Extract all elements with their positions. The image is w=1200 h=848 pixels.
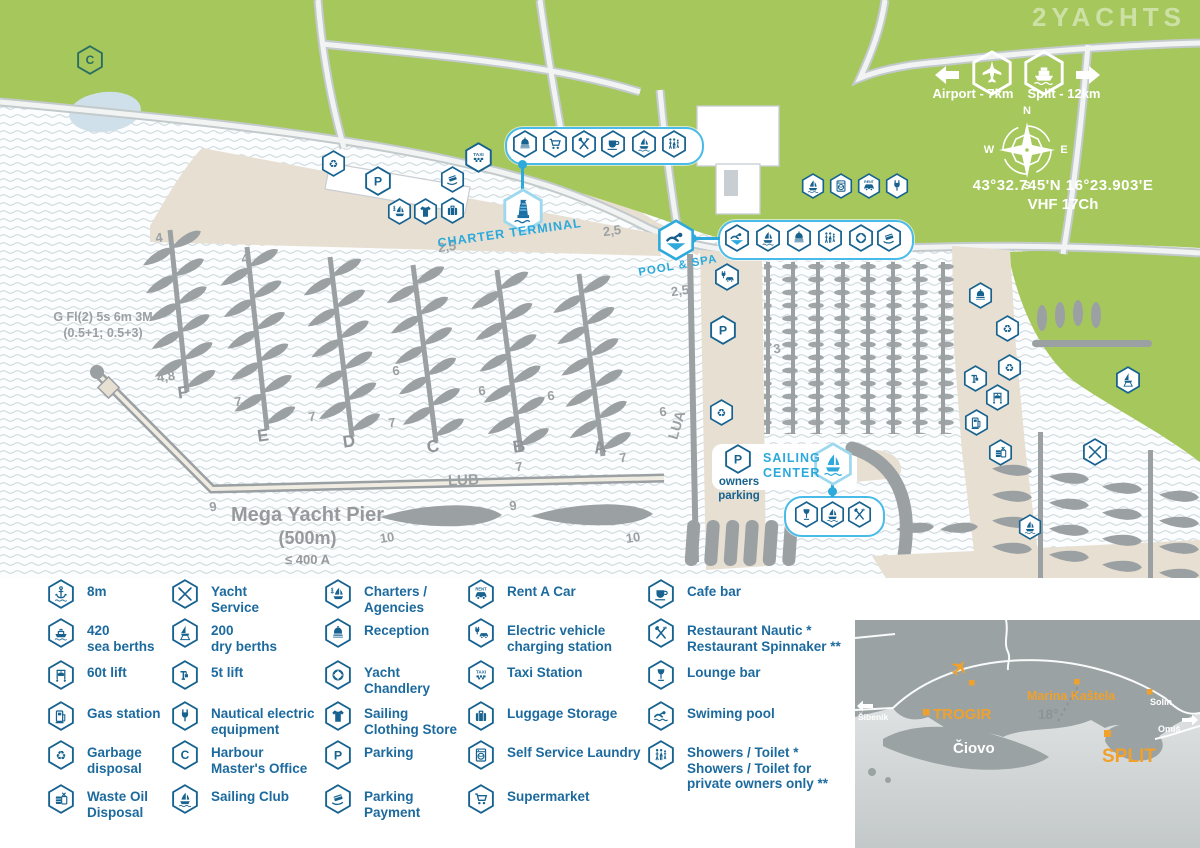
wine-glass-icon (646, 660, 676, 690)
swimmer-pool-icon (723, 224, 751, 252)
cart-icon (466, 784, 496, 814)
people-icon (816, 224, 844, 252)
svg-text:P: P (334, 749, 342, 763)
legend-item-label: Parking (364, 740, 414, 761)
legend-item-label: Luggage Storage (507, 701, 617, 722)
inset-trogir-label: TROGIR (933, 706, 991, 723)
waste-oil-icon (46, 784, 76, 814)
legend-item-label: Swiming pool (687, 701, 775, 722)
cart-icon (541, 130, 569, 158)
ship-icon (46, 618, 76, 648)
card-hand-icon (875, 224, 903, 252)
legend-item: Reception (323, 618, 429, 648)
vhf-channel: VHF 17Ch (930, 196, 1196, 213)
legend-item: 200dry berths (170, 618, 277, 654)
letter-c-icon: C (75, 45, 105, 75)
legend-item-label: Restaurant Nautic *Restaurant Spinnaker … (687, 618, 841, 654)
life-ring-icon (323, 660, 353, 690)
legend-item-label: Cafe bar (687, 579, 741, 600)
legend-item-label: Lounge bar (687, 660, 761, 681)
svg-text:C: C (181, 748, 190, 762)
crane-60t-icon (984, 384, 1011, 411)
legend-item-label: Nautical electricequipment (211, 701, 315, 737)
swimmer-icon (646, 701, 676, 731)
recycle-icon: ♻ (996, 354, 1023, 381)
wine-glass-icon (793, 501, 820, 528)
svg-text:♻: ♻ (1002, 322, 1012, 335)
inset-sibenik-label: Šibenik (858, 711, 889, 722)
legend-item-label: Showers / Toilet *Showers / Toilet forpr… (687, 740, 828, 792)
svg-text:TAXI: TAXI (476, 669, 486, 674)
legend-item-label: 60t lift (87, 660, 127, 681)
tools-icon (1081, 438, 1109, 466)
bell-icon (511, 130, 539, 158)
legend-item: 8m (46, 579, 107, 609)
inset-marina-label: Marina Kaštela (1027, 689, 1116, 703)
mega-pier-label-1: Mega Yacht Pier (215, 504, 400, 527)
sailing-center-label-1: SAILING (763, 451, 821, 465)
legend-item-label: Charters /Agencies (364, 579, 427, 615)
mega-pier-label-3: ≤ 400 A (215, 552, 400, 567)
inset-bearing-label: 18° (1038, 707, 1058, 722)
compass-e: E (1057, 144, 1071, 156)
legend-item-label: Electric vehiclecharging station (507, 618, 612, 654)
legend-item-label: Reception (364, 618, 429, 639)
legend-item: Nautical electricequipment (170, 701, 315, 737)
fork-spoon-icon (846, 501, 873, 528)
legend-item: Waste OilDisposal (46, 784, 148, 820)
people-icon (660, 130, 688, 158)
locator-inset-map: Šibenik TROGIR Čiovo Marina Kaštela 18° … (855, 620, 1200, 848)
marina-map-page: 2YACHTS Airport - 7km Split - 12km N E S… (0, 0, 1200, 848)
anchor-depth-icon (46, 579, 76, 609)
recycle-icon: ♻ (320, 150, 347, 177)
legend-item: RENTRent A Car (466, 579, 576, 609)
svg-text:♻: ♻ (1004, 361, 1014, 374)
legend-item: Luggage Storage (466, 701, 617, 731)
legend-item: Supermarket (466, 784, 590, 814)
inset-omis-label: Omiš (1158, 724, 1181, 734)
sailboat-anchor-icon (386, 198, 413, 225)
boat-stand-icon (170, 618, 200, 648)
svg-text:RENT: RENT (864, 180, 875, 184)
owners-parking-label-1: owners (711, 476, 767, 488)
pier-letter: A (587, 436, 614, 459)
coffee-cup-icon (646, 579, 676, 609)
sailboat-icon (819, 501, 846, 528)
legend-item: YachtService (170, 579, 259, 615)
waste-oil-icon (987, 439, 1014, 466)
legend-item-label: Self Service Laundry (507, 740, 641, 761)
crane-5t-icon (170, 660, 200, 690)
washing-machine-icon (466, 740, 496, 770)
tshirt-icon (412, 198, 439, 225)
recycle-icon: ♻ (46, 740, 76, 770)
lub-pier-label: LUB (448, 471, 480, 490)
legend-item: PParking (323, 740, 414, 770)
legend-item: Electric vehiclecharging station (466, 618, 612, 654)
legend-item-label: YachtChandlery (364, 660, 430, 696)
suitcase-icon (439, 197, 466, 224)
light-characteristic-2: (0.5+1; 0.5+3) (38, 326, 168, 340)
card-hand-icon (323, 784, 353, 814)
car-rent-icon: RENT (856, 173, 882, 199)
sailboat-icon (630, 130, 658, 158)
crane-60t-icon (46, 660, 76, 690)
gas-pump-icon (963, 409, 990, 436)
washing-machine-icon (828, 173, 854, 199)
legend-item-label: Rent A Car (507, 579, 576, 600)
pier-light (90, 365, 104, 379)
compass-n: N (1020, 105, 1034, 117)
people-icon (646, 740, 676, 770)
site-watermark: 2YACHTS (1032, 2, 1186, 33)
plug-icon (170, 701, 200, 731)
legend-item: 420sea berths (46, 618, 155, 654)
legend-item-label: 420sea berths (87, 618, 155, 654)
legend-item: SailingClothing Store (323, 701, 457, 737)
compass-rose: N E S W (991, 114, 1063, 186)
taxi-icon: TAXI (466, 660, 496, 690)
connector-dot (828, 487, 837, 496)
marina-coordinates: 43°32.745'N 16°23.903'E (930, 177, 1196, 194)
legend-item: Charters /Agencies (323, 579, 427, 615)
legend-item: CHarbourMaster's Office (170, 740, 307, 776)
svg-text:♻: ♻ (328, 157, 338, 170)
legend-item: Lounge bar (646, 660, 761, 690)
legend-item-label: Gas station (87, 701, 161, 722)
tools-icon (170, 579, 200, 609)
legend-item: YachtChandlery (323, 660, 430, 696)
svg-text:RENT: RENT (475, 587, 487, 592)
ev-charging-icon (713, 263, 741, 291)
sailboat-icon (754, 224, 782, 252)
sailboat-anchor-icon (323, 579, 353, 609)
tshirt-icon (323, 701, 353, 731)
legend-item: TAXITaxi Station (466, 660, 583, 690)
legend-item-label: ParkingPayment (364, 784, 420, 820)
legend-item-label: Waste OilDisposal (87, 784, 148, 820)
fork-spoon-icon (646, 618, 676, 648)
compass-w: W (982, 144, 996, 156)
legend-item-label: Garbagedisposal (87, 740, 142, 776)
inset-ciovo-label: Čiovo (953, 739, 995, 757)
legend-item: Gas station (46, 701, 161, 731)
ev-charging-icon (466, 618, 496, 648)
pier-letter: E (250, 424, 277, 447)
svg-text:♻: ♻ (56, 748, 67, 762)
sailboat-icon (800, 173, 826, 199)
pier-letter: C (420, 435, 447, 458)
legend-item: Sailing Club (170, 784, 289, 814)
suitcase-icon (466, 701, 496, 731)
pier-letter: F (170, 381, 197, 404)
boat-stand-icon (1114, 366, 1142, 394)
legend-item-label: SailingClothing Store (364, 701, 457, 737)
fork-spoon-icon (570, 130, 598, 158)
legend-item-label: HarbourMaster's Office (211, 740, 307, 776)
letter-p-icon: P (723, 444, 753, 474)
letter-p-icon: P (708, 315, 738, 345)
light-characteristic-1: G Fl(2) 5s 6m 3M (38, 310, 168, 324)
legend-item: Cafe bar (646, 579, 741, 609)
legend-item-label: Supermarket (507, 784, 590, 805)
sailboat-icon (170, 784, 200, 814)
legend-item: 60t lift (46, 660, 127, 690)
legend-item-label: 200dry berths (211, 618, 277, 654)
legend-item-label: YachtService (211, 579, 259, 615)
legend-item-label: 8m (87, 579, 107, 600)
bell-icon (785, 224, 813, 252)
legend-item: Self Service Laundry (466, 740, 641, 770)
letter-p-icon: P (363, 166, 393, 196)
connector-line (694, 237, 720, 240)
bell-icon (323, 618, 353, 648)
owners-parking-label-2: parking (711, 490, 767, 502)
inset-solin-label: Solin (1150, 697, 1172, 707)
car-rent-icon: RENT (466, 579, 496, 609)
svg-text:P: P (719, 324, 727, 338)
split-distance: Split - 12km (1010, 86, 1118, 101)
gas-pump-icon (46, 701, 76, 731)
sailboat-icon (1017, 514, 1043, 540)
sailing-center-label-2: CENTER (763, 466, 820, 480)
legend-item: Showers / Toilet *Showers / Toilet forpr… (646, 740, 828, 792)
legend-item-label: Sailing Club (211, 784, 289, 805)
legend-item: Restaurant Nautic *Restaurant Spinnaker … (646, 618, 841, 654)
mega-pier-label-2: (500m) (215, 528, 400, 549)
svg-text:C: C (86, 53, 95, 67)
legend-item: ♻Garbagedisposal (46, 740, 142, 776)
recycle-icon: ♻ (708, 399, 735, 426)
connector-dot (518, 160, 527, 169)
recycle-icon: ♻ (994, 315, 1021, 342)
life-ring-icon (847, 224, 875, 252)
svg-text:TAXI: TAXI (473, 151, 484, 157)
pier-letter: B (506, 435, 533, 458)
inset-split-label: SPLIT (1102, 746, 1156, 767)
legend-item: 5t lift (170, 660, 243, 690)
card-hand-icon (439, 166, 466, 193)
svg-text:♻: ♻ (716, 406, 726, 419)
taxi-icon: TAXI (463, 142, 494, 173)
swimmer-pool-icon (655, 219, 697, 261)
bell-icon (967, 282, 994, 309)
legend-item-label: 5t lift (211, 660, 243, 681)
legend-item: Swiming pool (646, 701, 775, 731)
svg-text:P: P (374, 175, 382, 189)
legend-item: ParkingPayment (323, 784, 420, 820)
legend-item-label: Taxi Station (507, 660, 583, 681)
svg-text:P: P (734, 453, 742, 467)
letter-c-icon: C (170, 740, 200, 770)
coffee-cup-icon (599, 130, 627, 158)
pier-letter: D (336, 430, 363, 453)
letter-p-icon: P (323, 740, 353, 770)
plug-icon (884, 173, 910, 199)
